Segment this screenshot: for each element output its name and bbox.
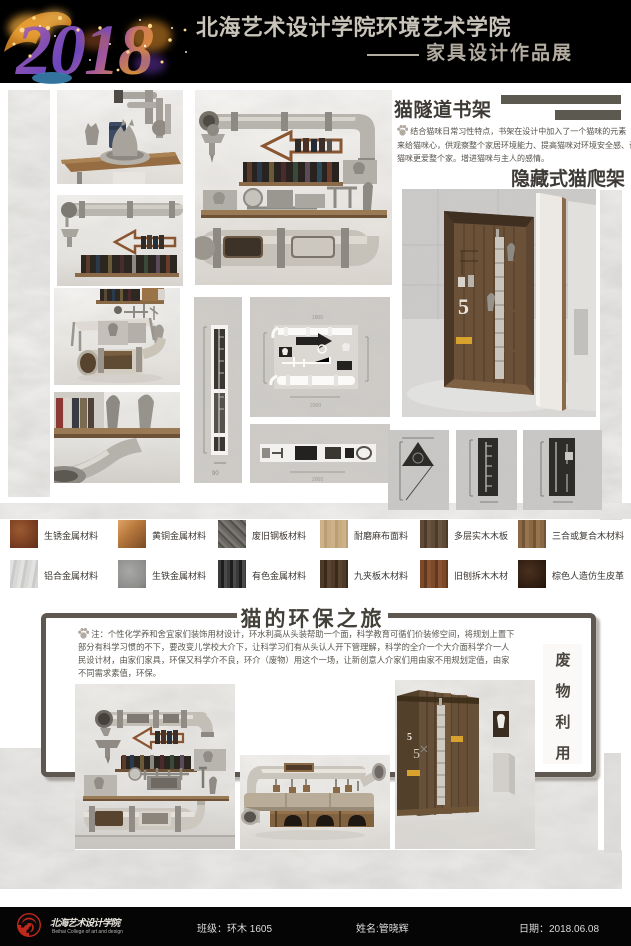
svg-text:2000: 2000: [310, 403, 321, 409]
svg-text:5: 5: [458, 294, 469, 319]
svg-text:2000: 2000: [312, 477, 323, 483]
svg-text:5: 5: [407, 732, 412, 743]
svg-text:5: 5: [413, 747, 420, 762]
svg-text:1800: 1800: [312, 315, 323, 321]
svg-text:90: 90: [212, 471, 219, 477]
